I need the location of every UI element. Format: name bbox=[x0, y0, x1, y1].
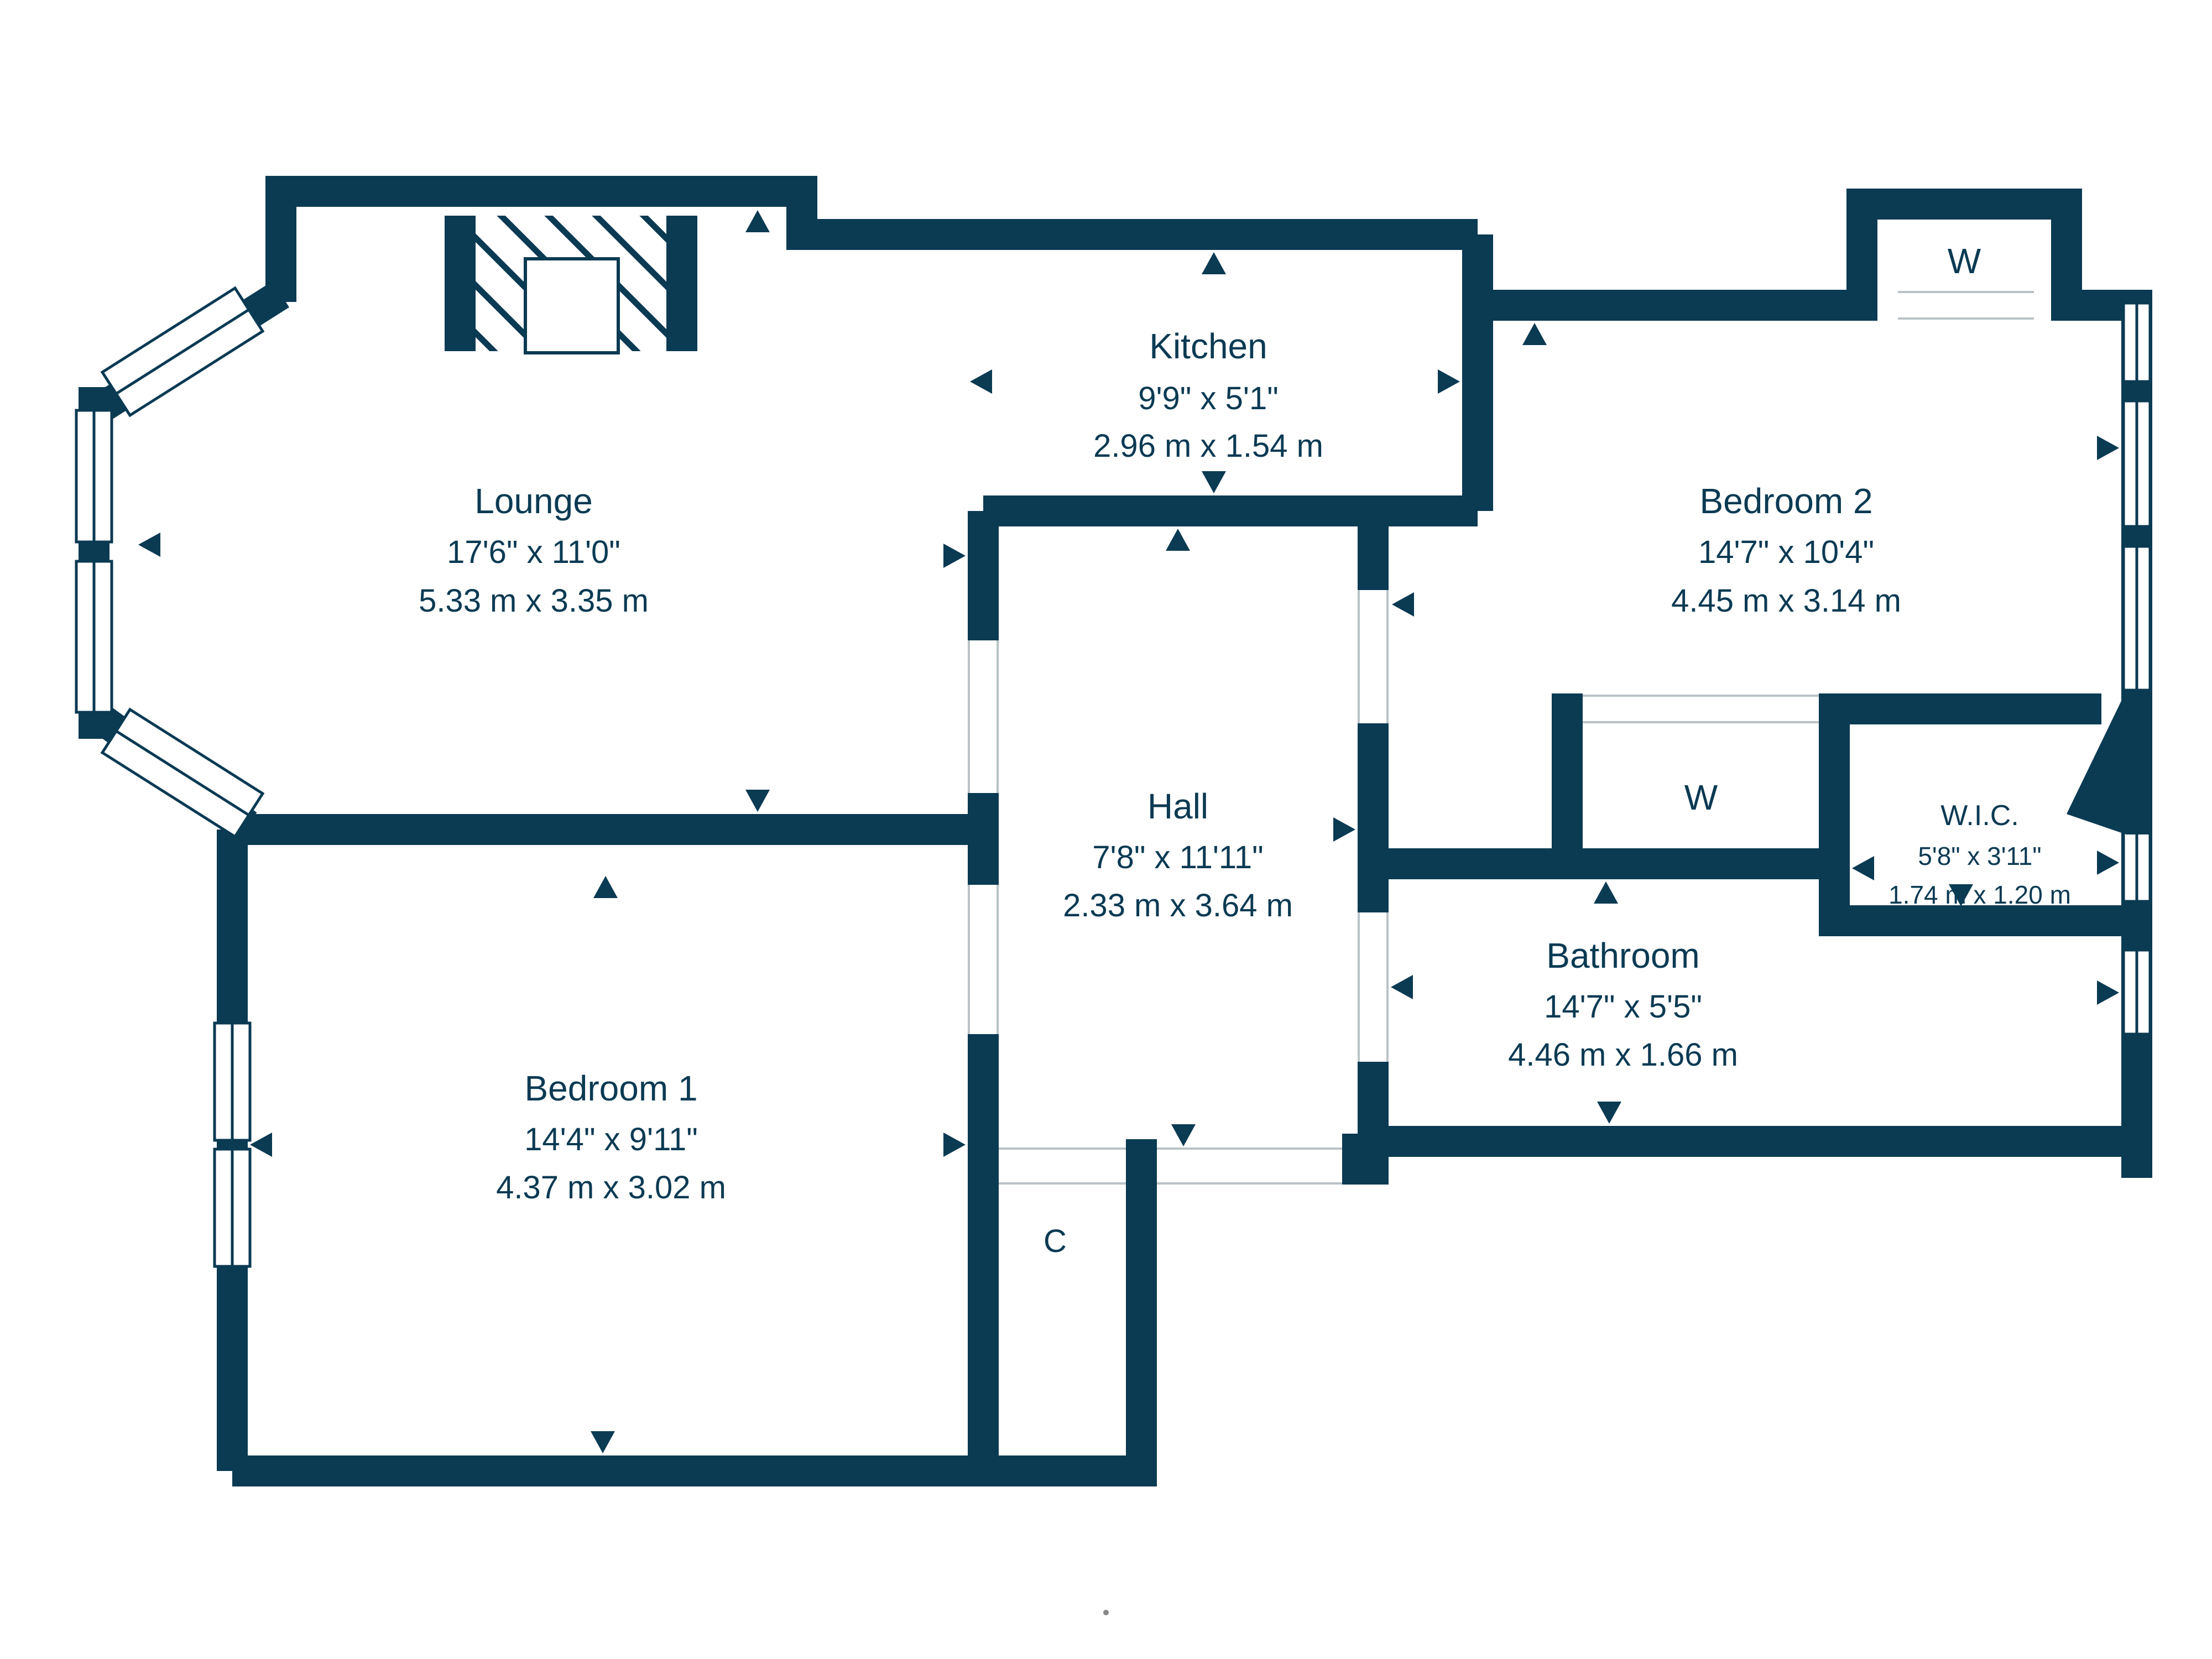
bedroom1-top-arrow-icon bbox=[593, 876, 618, 898]
room-label-kitchen: Kitchen 9'9" x 5'1" 2.96 m x 1.54 m bbox=[1093, 326, 1323, 464]
room-label-lounge: Lounge 17'6" x 11'0" 5.33 m x 3.35 m bbox=[419, 481, 649, 619]
bathroom-imperial: 14'7" x 5'5" bbox=[1544, 989, 1702, 1025]
chimney-breast bbox=[476, 216, 666, 353]
bedroom2-right-arrow-icon bbox=[2097, 436, 2119, 460]
lounge-top-arrow-icon bbox=[745, 210, 770, 232]
wic-name: W.I.C. bbox=[1940, 800, 2019, 832]
bedroom2-metric: 4.45 m x 3.14 m bbox=[1671, 583, 1901, 619]
kitchen-top-arrow-icon bbox=[1202, 252, 1226, 274]
walls bbox=[79, 176, 2152, 1471]
chimney-flue bbox=[525, 259, 618, 353]
wic-left-arrow-icon bbox=[1852, 856, 1874, 880]
bedroom2-imperial: 14'7" x 10'4" bbox=[1698, 534, 1874, 570]
bedroom1-bottom-arrow-icon bbox=[591, 1431, 615, 1453]
lounge-imperial: 17'6" x 11'0" bbox=[447, 534, 620, 570]
bedroom2-top-arrow-icon bbox=[1522, 323, 1547, 345]
kitchen-right-arrow-icon bbox=[1438, 369, 1460, 394]
room-label-hall: Hall 7'8" x 11'11" 2.33 m x 3.64 m bbox=[1063, 786, 1293, 924]
wardrobe-top-label: W bbox=[1948, 241, 1981, 281]
room-label-wic: W.I.C. 5'8" x 3'11" 1.74 m x 1.20 m bbox=[1888, 800, 2071, 909]
bathroom-top-arrow-icon bbox=[1594, 881, 1618, 904]
room-label-bedroom2: Bedroom 2 14'7" x 10'4" 4.45 m x 3.14 m bbox=[1671, 481, 1901, 619]
bedroom2-left-arrow-icon bbox=[1392, 592, 1414, 617]
bedroom1-imperial: 14'4" x 9'11" bbox=[524, 1121, 698, 1157]
bathroom-name: Bathroom bbox=[1546, 936, 1699, 975]
door-thresholds bbox=[969, 291, 2034, 1183]
closet-label: C bbox=[1044, 1223, 1067, 1259]
bathroom-bottom-arrow-icon bbox=[1597, 1102, 1621, 1124]
bedroom1-left-arrow-icon bbox=[250, 1133, 272, 1157]
bedroom1-metric: 4.37 m x 3.02 m bbox=[496, 1170, 726, 1206]
kitchen-name: Kitchen bbox=[1149, 326, 1267, 366]
kitchen-bottom-arrow-icon bbox=[1202, 471, 1226, 493]
bathroom-left-arrow-icon bbox=[1391, 975, 1413, 999]
lounge-name: Lounge bbox=[474, 481, 593, 521]
lounge-bottom-arrow-icon bbox=[745, 790, 770, 812]
hall-top-arrow-icon bbox=[1166, 529, 1190, 551]
watermark-dot bbox=[1103, 1610, 1109, 1615]
kitchen-metric: 2.96 m x 1.54 m bbox=[1093, 428, 1323, 464]
wic-right-arrow-icon bbox=[2097, 851, 2119, 875]
wic-metric: 1.74 m x 1.20 m bbox=[1888, 880, 2071, 909]
hall-bottom-arrow-icon bbox=[1171, 1124, 1196, 1146]
room-label-bathroom: Bathroom 14'7" x 5'5" 4.46 m x 1.66 m bbox=[1508, 936, 1738, 1073]
floor-plan-page: Lounge 17'6" x 11'0" 5.33 m x 3.35 m Kit… bbox=[0, 0, 2212, 1659]
hall-metric: 2.33 m x 3.64 m bbox=[1063, 888, 1293, 924]
wic-imperial: 5'8" x 3'11" bbox=[1918, 842, 2041, 870]
lounge-right-arrow-icon bbox=[943, 544, 966, 568]
lounge-left-arrow-icon bbox=[138, 533, 160, 557]
hall-imperial: 7'8" x 11'11" bbox=[1092, 839, 1263, 875]
bedroom1-right-arrow-icon bbox=[943, 1133, 966, 1157]
bedroom1-name: Bedroom 1 bbox=[524, 1068, 697, 1108]
bathroom-right-arrow-icon bbox=[2097, 980, 2119, 1005]
wardrobe-middle-label: W bbox=[1684, 778, 1718, 817]
kitchen-imperial: 9'9" x 5'1" bbox=[1138, 380, 1279, 416]
floor-plan: Lounge 17'6" x 11'0" 5.33 m x 3.35 m Kit… bbox=[0, 0, 2212, 1659]
room-label-bedroom1: Bedroom 1 14'4" x 9'11" 4.37 m x 3.02 m bbox=[496, 1068, 726, 1206]
hall-name: Hall bbox=[1147, 786, 1208, 826]
kitchen-left-arrow-icon bbox=[970, 369, 992, 394]
bedroom2-name: Bedroom 2 bbox=[1699, 481, 1872, 521]
lounge-metric: 5.33 m x 3.35 m bbox=[419, 583, 649, 619]
hall-right-arrow-icon bbox=[1333, 817, 1355, 842]
bathroom-metric: 4.46 m x 1.66 m bbox=[1508, 1037, 1738, 1073]
